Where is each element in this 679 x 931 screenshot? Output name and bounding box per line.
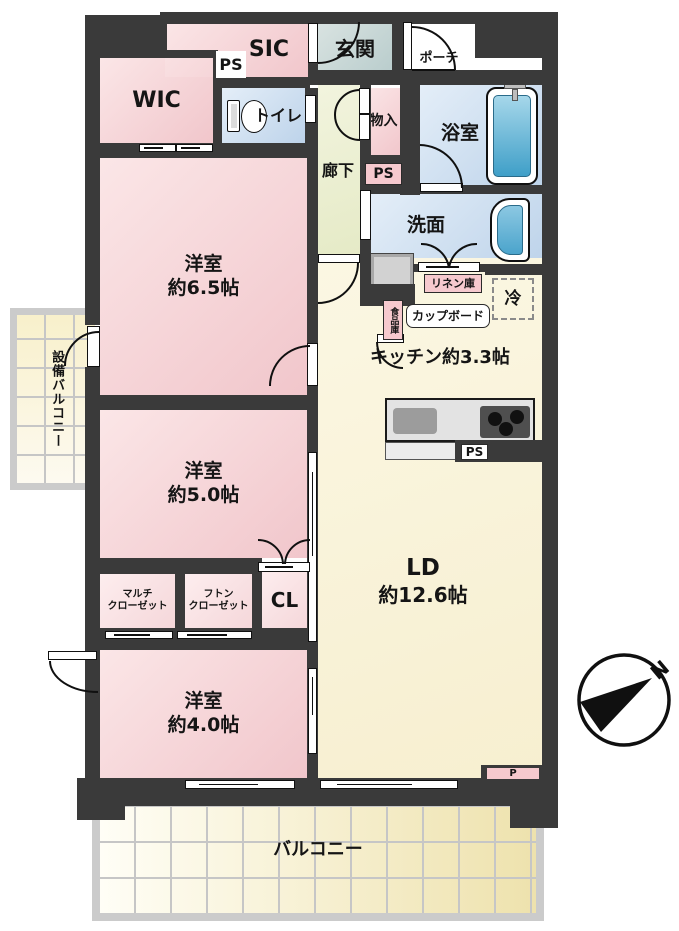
wall xyxy=(175,565,185,628)
washroom-door xyxy=(360,190,371,240)
living-label: LD 約12.6帖 xyxy=(318,548,528,614)
wall xyxy=(485,264,542,275)
room-bedroom2-name: 洋室 xyxy=(184,460,222,484)
room-genkan: 玄関 xyxy=(318,22,392,77)
room-bedroom1-size: 約6.5帖 xyxy=(168,277,240,301)
room-closet-label: CL xyxy=(271,588,298,613)
room-wic-label: WIC xyxy=(132,87,181,115)
wall xyxy=(308,70,558,85)
room-bedroom2: 洋室 約5.0帖 xyxy=(100,410,307,558)
wash-basin-bowl xyxy=(497,205,523,255)
balcony-window xyxy=(185,780,295,789)
wall xyxy=(215,77,310,88)
room-futon-closet: フトン クローゼット xyxy=(185,574,252,628)
closet-sliding-door xyxy=(177,631,252,639)
room-genkan-label: 玄関 xyxy=(335,37,375,62)
ps-shaft-kitchen: PS xyxy=(461,444,488,460)
porch-door xyxy=(403,22,412,70)
wic-sliding-door xyxy=(176,144,213,152)
linen-cabinet: リネン庫 xyxy=(424,274,482,293)
room-bedroom3: 洋室 約4.0帖 xyxy=(100,650,307,778)
wall xyxy=(400,77,420,195)
room-bedroom1-name: 洋室 xyxy=(184,253,222,277)
wall xyxy=(363,155,403,163)
room-porch: ポーチ xyxy=(403,22,475,70)
room-storage-label: 物入 xyxy=(370,113,398,131)
bedroom1-door xyxy=(307,343,318,386)
balcony: バルコニー xyxy=(92,788,544,921)
storage-door xyxy=(359,114,370,140)
room-futon-closet-label: フトン クローゼット xyxy=(189,589,249,614)
closet-sliding-door xyxy=(105,631,173,639)
compass: N xyxy=(568,648,679,760)
service-balcony: 設備バルコニー xyxy=(10,308,95,490)
balcony-label: バルコニー xyxy=(273,839,363,862)
wall xyxy=(88,50,218,58)
bedroom3-sliding-door xyxy=(308,668,317,754)
room-porch-label: ポーチ xyxy=(419,51,458,67)
service-balcony-label: 設備バルコニー xyxy=(48,350,64,448)
room-bedroom2-size: 約5.0帖 xyxy=(168,484,240,508)
bathtub-water xyxy=(493,95,531,177)
bathroom-label: 浴室 xyxy=(430,120,490,146)
faucet-stem-icon xyxy=(512,89,518,101)
corridor-ld-door xyxy=(318,254,360,263)
genkan-door xyxy=(308,23,318,63)
room-multi-closet-label: マルチ クローゼット xyxy=(108,589,168,614)
room-closet: CL xyxy=(262,572,307,628)
cl-door-sill xyxy=(258,562,310,572)
ps-shaft-top-label: PS xyxy=(219,55,242,74)
room-multi-closet: マルチ クローゼット xyxy=(100,574,175,628)
toilet-label: トイレ xyxy=(250,103,306,129)
p-shaft-right: P xyxy=(487,768,539,779)
toilet-door xyxy=(305,95,316,123)
ps-shaft-hall-label: PS xyxy=(373,166,393,183)
cupboard: カップボード xyxy=(406,304,490,328)
room-bedroom3-name: 洋室 xyxy=(184,690,222,714)
wall xyxy=(392,22,403,70)
toilet-tank-inner xyxy=(231,104,237,128)
bedroom2-sliding-door xyxy=(308,452,317,642)
kitchen-label: キッチン 約3.3帖 xyxy=(360,334,520,382)
corridor-label: 廊下 xyxy=(313,158,363,184)
pillar xyxy=(510,778,558,828)
storage-door xyxy=(359,88,370,114)
linen-door-sill xyxy=(418,262,480,272)
wic-sliding-door xyxy=(139,144,176,152)
burner-icon xyxy=(510,410,524,424)
service-balcony-door xyxy=(87,326,100,367)
wall xyxy=(85,367,100,490)
floorplan: WIC SIC 玄関 ポーチ 物入 洋室 約6.5帖 洋室 約5.0帖 マルチ … xyxy=(0,0,679,931)
counter-extension xyxy=(385,442,457,460)
balcony-window xyxy=(320,780,458,789)
room-bedroom1: 洋室 約6.5帖 xyxy=(100,158,307,395)
bathroom-door-sill xyxy=(420,183,463,192)
washroom-label: 洗面 xyxy=(398,212,454,238)
kitchen-sink xyxy=(393,408,437,434)
room-bedroom3-size: 約4.0帖 xyxy=(168,714,240,738)
room-sic-label: SIC xyxy=(249,36,289,64)
ps-shaft-top: PS xyxy=(216,51,246,78)
wall xyxy=(85,15,100,325)
fridge-space: 冷 xyxy=(492,278,534,320)
wall xyxy=(542,30,558,806)
ps-shaft-hall: PS xyxy=(365,163,402,185)
wall xyxy=(85,395,318,410)
exterior-door xyxy=(48,651,97,660)
burner-icon xyxy=(499,422,513,436)
